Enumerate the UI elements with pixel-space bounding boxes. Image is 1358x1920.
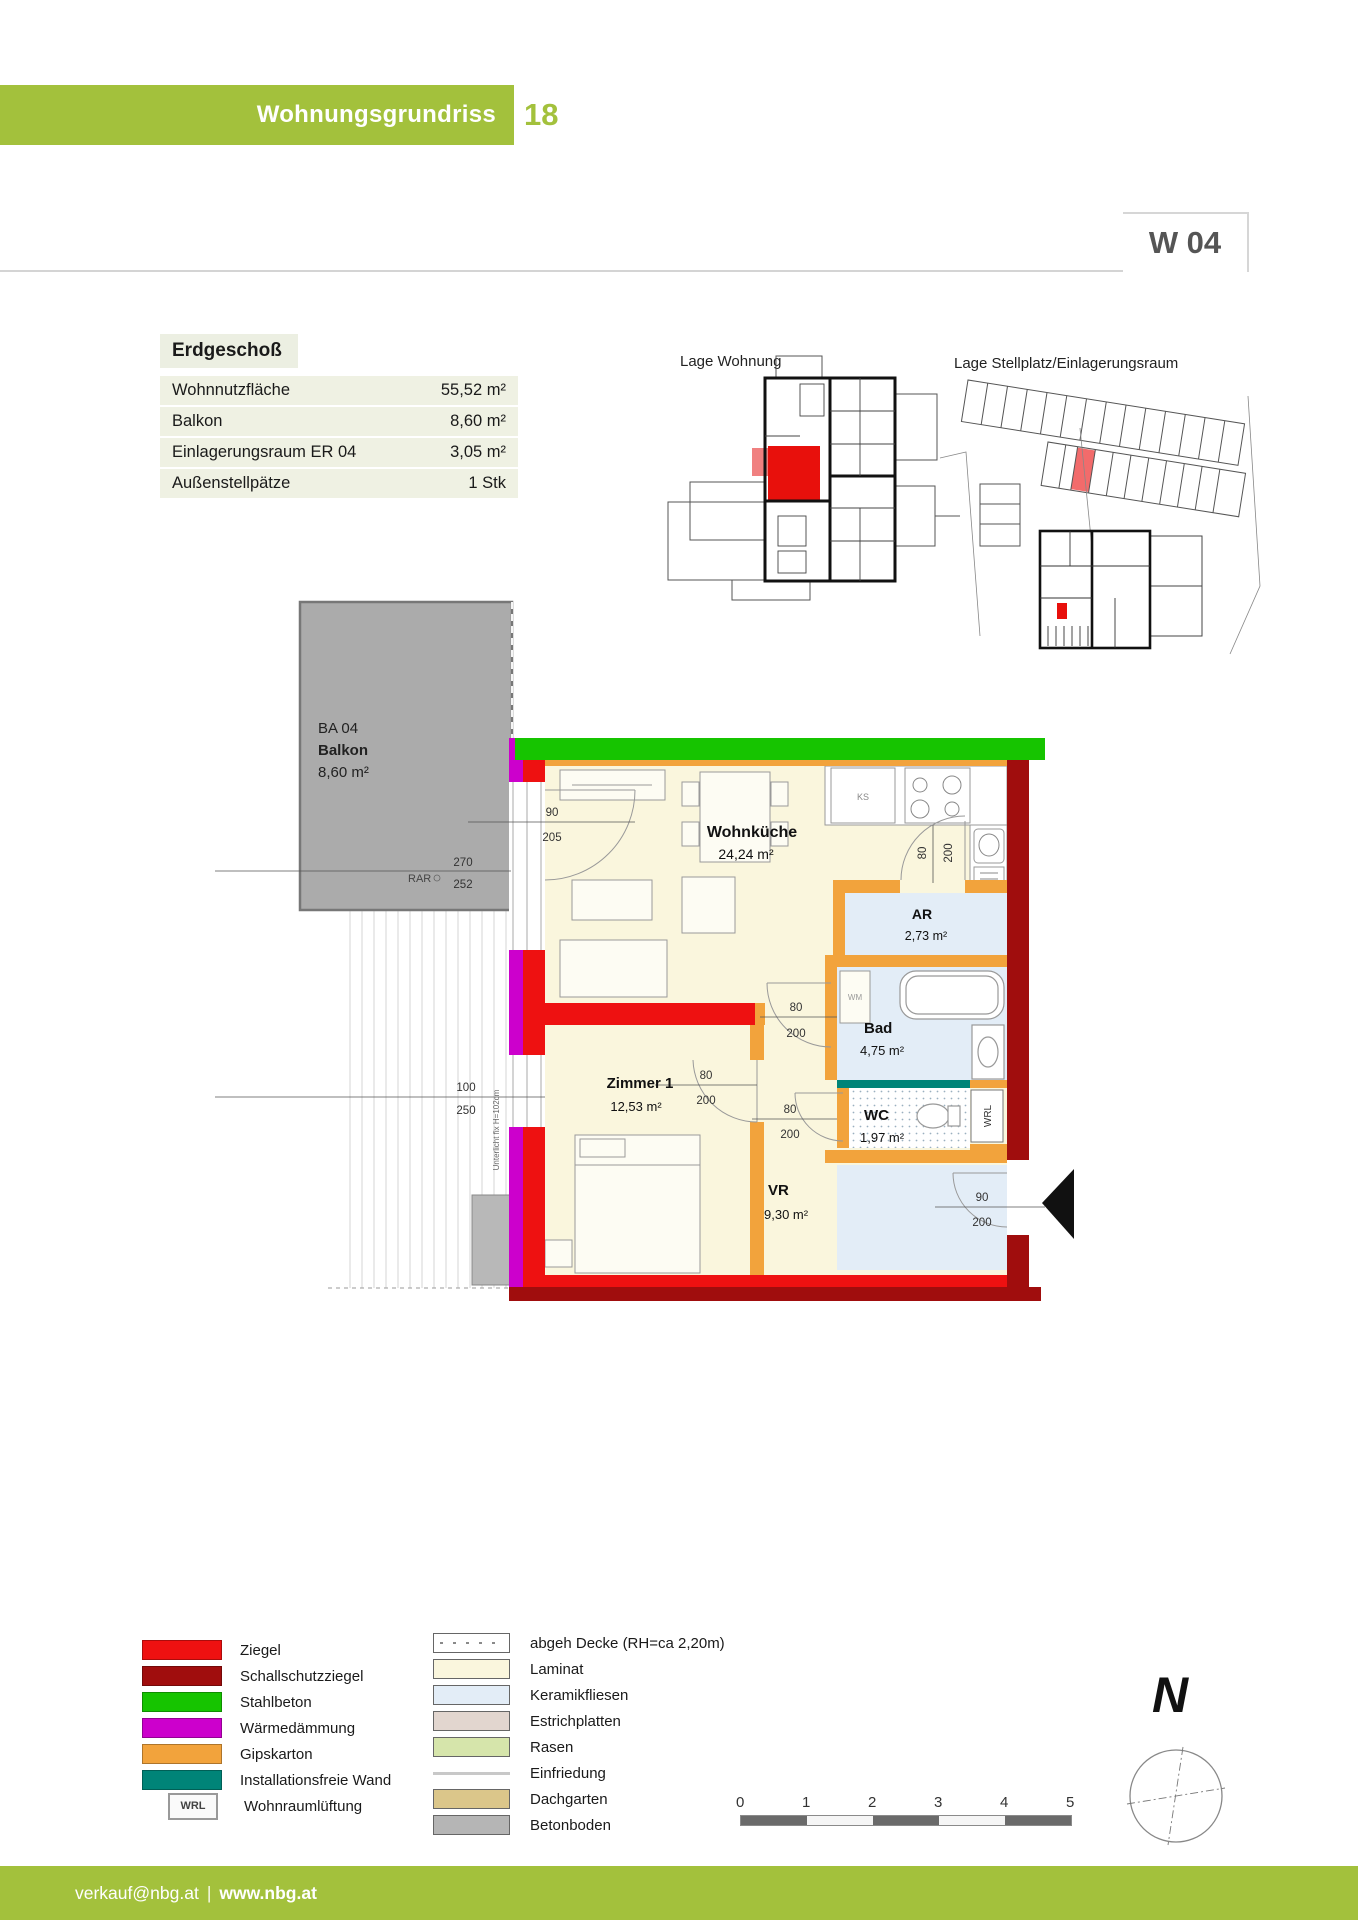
dim-balcony-h: 252 [453, 879, 472, 891]
parking-highlight-stall [1071, 448, 1095, 492]
footer-separator: | [207, 1883, 212, 1904]
legend-label: Laminat [530, 1661, 583, 1678]
legend-item: WRL Wohnraumlüftung [142, 1796, 391, 1816]
dim-ar-door-w: 80 [917, 847, 929, 860]
legend-item: abgeh Decke (RH=ca 2,20m) [433, 1633, 725, 1653]
legend-item: Estrichplatten [433, 1711, 725, 1731]
legend-item: Ziegel [142, 1640, 391, 1660]
parking-building-annex [1150, 536, 1202, 636]
room-wc-area: 1,97 m² [860, 1130, 905, 1145]
north-label: N [1152, 1667, 1189, 1723]
scale-tick: 2 [868, 1794, 876, 1811]
legend-item: Keramikfliesen [433, 1685, 725, 1705]
dim-entrance-h: 200 [972, 1217, 991, 1229]
legend-label: Einfriedung [530, 1765, 606, 1782]
wrl-label: WRL [983, 1104, 994, 1127]
dim-window-h: 250 [456, 1105, 475, 1117]
room-zimmer1-area: 12,53 m² [610, 1099, 662, 1114]
legend-item: Wärmedämmung [142, 1718, 391, 1738]
site-plan-parking-title: Lage Stellplatz/Einlagerungsraum [954, 355, 1178, 372]
scale-tick: 1 [802, 1794, 810, 1811]
legend-label: Estrichplatten [530, 1713, 621, 1730]
floor-ar [845, 893, 1007, 955]
legend-label: abgeh Decke (RH=ca 2,20m) [530, 1635, 725, 1652]
legend-swatch-ziegel [142, 1640, 222, 1660]
footer-bar: verkauf@nbg.at | www.nbg.at [0, 1866, 1358, 1920]
scale-bar: 0 1 2 3 4 5 [740, 1794, 1080, 1834]
legend-item: Einfriedung [433, 1763, 725, 1783]
legend-swatch-estrichplatten [433, 1711, 510, 1731]
dim-wc-door-h: 200 [780, 1129, 799, 1141]
table-row: Außenstellpätze 1 Stk [160, 469, 518, 498]
legend-label: Wärmedämmung [240, 1720, 355, 1737]
legend-item: Betonboden [433, 1815, 725, 1835]
balcony-name: Balkon [318, 742, 368, 759]
room-zimmer1-name: Zimmer 1 [607, 1075, 674, 1092]
legend-swatch-waermedaemmung [142, 1718, 222, 1738]
legend-swatch-installationsfreie-wand [142, 1770, 222, 1790]
wall-installation-free [837, 1080, 970, 1088]
legend-wrl-badge: WRL [168, 1793, 218, 1820]
legend-item: Laminat [433, 1659, 725, 1679]
row-value: 55,52 m² [441, 381, 506, 400]
site-highlight-apartment [768, 446, 820, 501]
row-label: Balkon [172, 412, 222, 431]
row-value: 8,60 m² [450, 412, 506, 431]
site-plan-apartment: Lage Wohnung [560, 336, 960, 602]
legend-label: Stahlbeton [240, 1694, 312, 1711]
window-note: Unterlicht fix H=102cm [492, 1089, 501, 1170]
scale-tick: 5 [1066, 1794, 1074, 1811]
row-label: Einlagerungsraum ER 04 [172, 443, 356, 462]
dim-bad-door-w: 80 [790, 1002, 803, 1014]
scale-tick: 0 [736, 1794, 744, 1811]
compass: N [1110, 1650, 1245, 1860]
legend-swatch-abgeh-decke [433, 1633, 510, 1653]
legend-label: Dachgarten [530, 1791, 608, 1808]
legend-label: Keramikfliesen [530, 1687, 628, 1704]
scale-tick: 3 [934, 1794, 942, 1811]
washer-label: WM [848, 993, 863, 1002]
dim-entrance-w: 90 [976, 1192, 989, 1204]
room-wohnkueche-area: 24,24 m² [718, 846, 774, 862]
dim-balcony-door-w: 90 [546, 807, 559, 819]
row-value: 1 Stk [468, 474, 506, 493]
legend-label: Schallschutzziegel [240, 1668, 363, 1685]
footer-email[interactable]: verkauf@nbg.at [75, 1883, 199, 1904]
footer-website[interactable]: www.nbg.at [219, 1883, 317, 1904]
legend-swatch-stahlbeton [142, 1692, 222, 1712]
parking-row-top [961, 380, 1244, 465]
legend-item: Gipskarton [142, 1744, 391, 1764]
dim-wc-door-w: 80 [784, 1104, 797, 1116]
legend-item: Installationsfreie Wand [142, 1770, 391, 1790]
room-bad-area: 4,75 m² [860, 1043, 905, 1058]
legend-swatch-schallschutzziegel [142, 1666, 222, 1686]
room-vr-area: 9,30 m² [764, 1207, 809, 1222]
fridge-label: KS [857, 792, 869, 802]
legend-swatch-dachgarten [433, 1789, 510, 1809]
legend-item: Schallschutzziegel [142, 1666, 391, 1686]
dim-balcony-w: 270 [453, 857, 472, 869]
room-wc-name: WC [864, 1107, 889, 1124]
page: Wohnungsgrundriss 18 W 04 Erdgeschoß Woh… [0, 0, 1358, 1920]
room-ar-area: 2,73 m² [905, 929, 947, 943]
dim-ar-door-h: 200 [943, 843, 955, 862]
floor-plan: BA 04 Balkon 8,60 m² RAR [200, 585, 1080, 1345]
legend-item: Stahlbeton [142, 1692, 391, 1712]
room-vr-name: VR [768, 1182, 789, 1199]
legend-swatch-keramikfliesen [433, 1685, 510, 1705]
entrance-arrow-icon [1042, 1169, 1074, 1239]
row-value: 3,05 m² [450, 443, 506, 462]
legend-label: Installationsfreie Wand [240, 1772, 391, 1789]
room-ar-name: AR [912, 906, 932, 922]
legend-label: Wohnraumlüftung [244, 1798, 362, 1815]
floor-label: Erdgeschoß [160, 334, 298, 368]
patio-slab [472, 1195, 515, 1285]
dim-window-w: 100 [456, 1082, 475, 1094]
scale-bar-segments [740, 1815, 1072, 1826]
dim-zimmer-door-h: 200 [696, 1095, 715, 1107]
wall-stahlbeton [515, 738, 1045, 760]
legend-item: Dachgarten [433, 1789, 725, 1809]
legend-label: Ziegel [240, 1642, 281, 1659]
info-table: Wohnnutzfläche 55,52 m² Balkon 8,60 m² E… [160, 376, 518, 500]
page-number: 18 [524, 85, 558, 145]
dim-bad-door-h: 200 [786, 1028, 805, 1040]
legend-swatch-rasen [433, 1737, 510, 1757]
table-row: Einlagerungsraum ER 04 3,05 m² [160, 438, 518, 467]
parking-block-left [980, 484, 1020, 546]
legend-swatch-einfriedung [433, 1763, 510, 1783]
site-plan-apartment-title: Lage Wohnung [680, 353, 781, 370]
row-label: Außenstellpätze [172, 474, 290, 493]
dim-balcony-door-h: 205 [542, 832, 561, 844]
balcony-code: BA 04 [318, 720, 358, 737]
table-row: Balkon 8,60 m² [160, 407, 518, 436]
legend-swatch-laminat [433, 1659, 510, 1679]
unit-badge: W 04 [1123, 212, 1249, 272]
legend-left-column: Ziegel Schallschutzziegel Stahlbeton Wär… [142, 1640, 391, 1822]
table-row: Wohnnutzfläche 55,52 m² [160, 376, 518, 405]
page-title: Wohnungsgrundriss [257, 101, 496, 129]
legend-swatch-betonboden [433, 1815, 510, 1835]
scale-tick: 4 [1000, 1794, 1008, 1811]
divider-rule [0, 270, 1247, 272]
legend-label: Gipskarton [240, 1746, 313, 1763]
rar-note: RAR [408, 873, 431, 885]
legend-item: Rasen [433, 1737, 725, 1757]
dim-zimmer-door-w: 80 [700, 1070, 713, 1082]
legend-swatch-gipskarton [142, 1744, 222, 1764]
room-bad-name: Bad [864, 1020, 892, 1037]
room-wohnkueche-name: Wohnküche [707, 824, 797, 841]
row-label: Wohnnutzfläche [172, 381, 290, 400]
header-bar: Wohnungsgrundriss [0, 85, 514, 145]
legend-label: Rasen [530, 1739, 573, 1756]
legend-label: Betonboden [530, 1817, 611, 1834]
parking-row-middle [1041, 442, 1245, 517]
legend-right-column: abgeh Decke (RH=ca 2,20m) Laminat Kerami… [433, 1633, 725, 1841]
balcony-area-value: 8,60 m² [318, 764, 369, 781]
